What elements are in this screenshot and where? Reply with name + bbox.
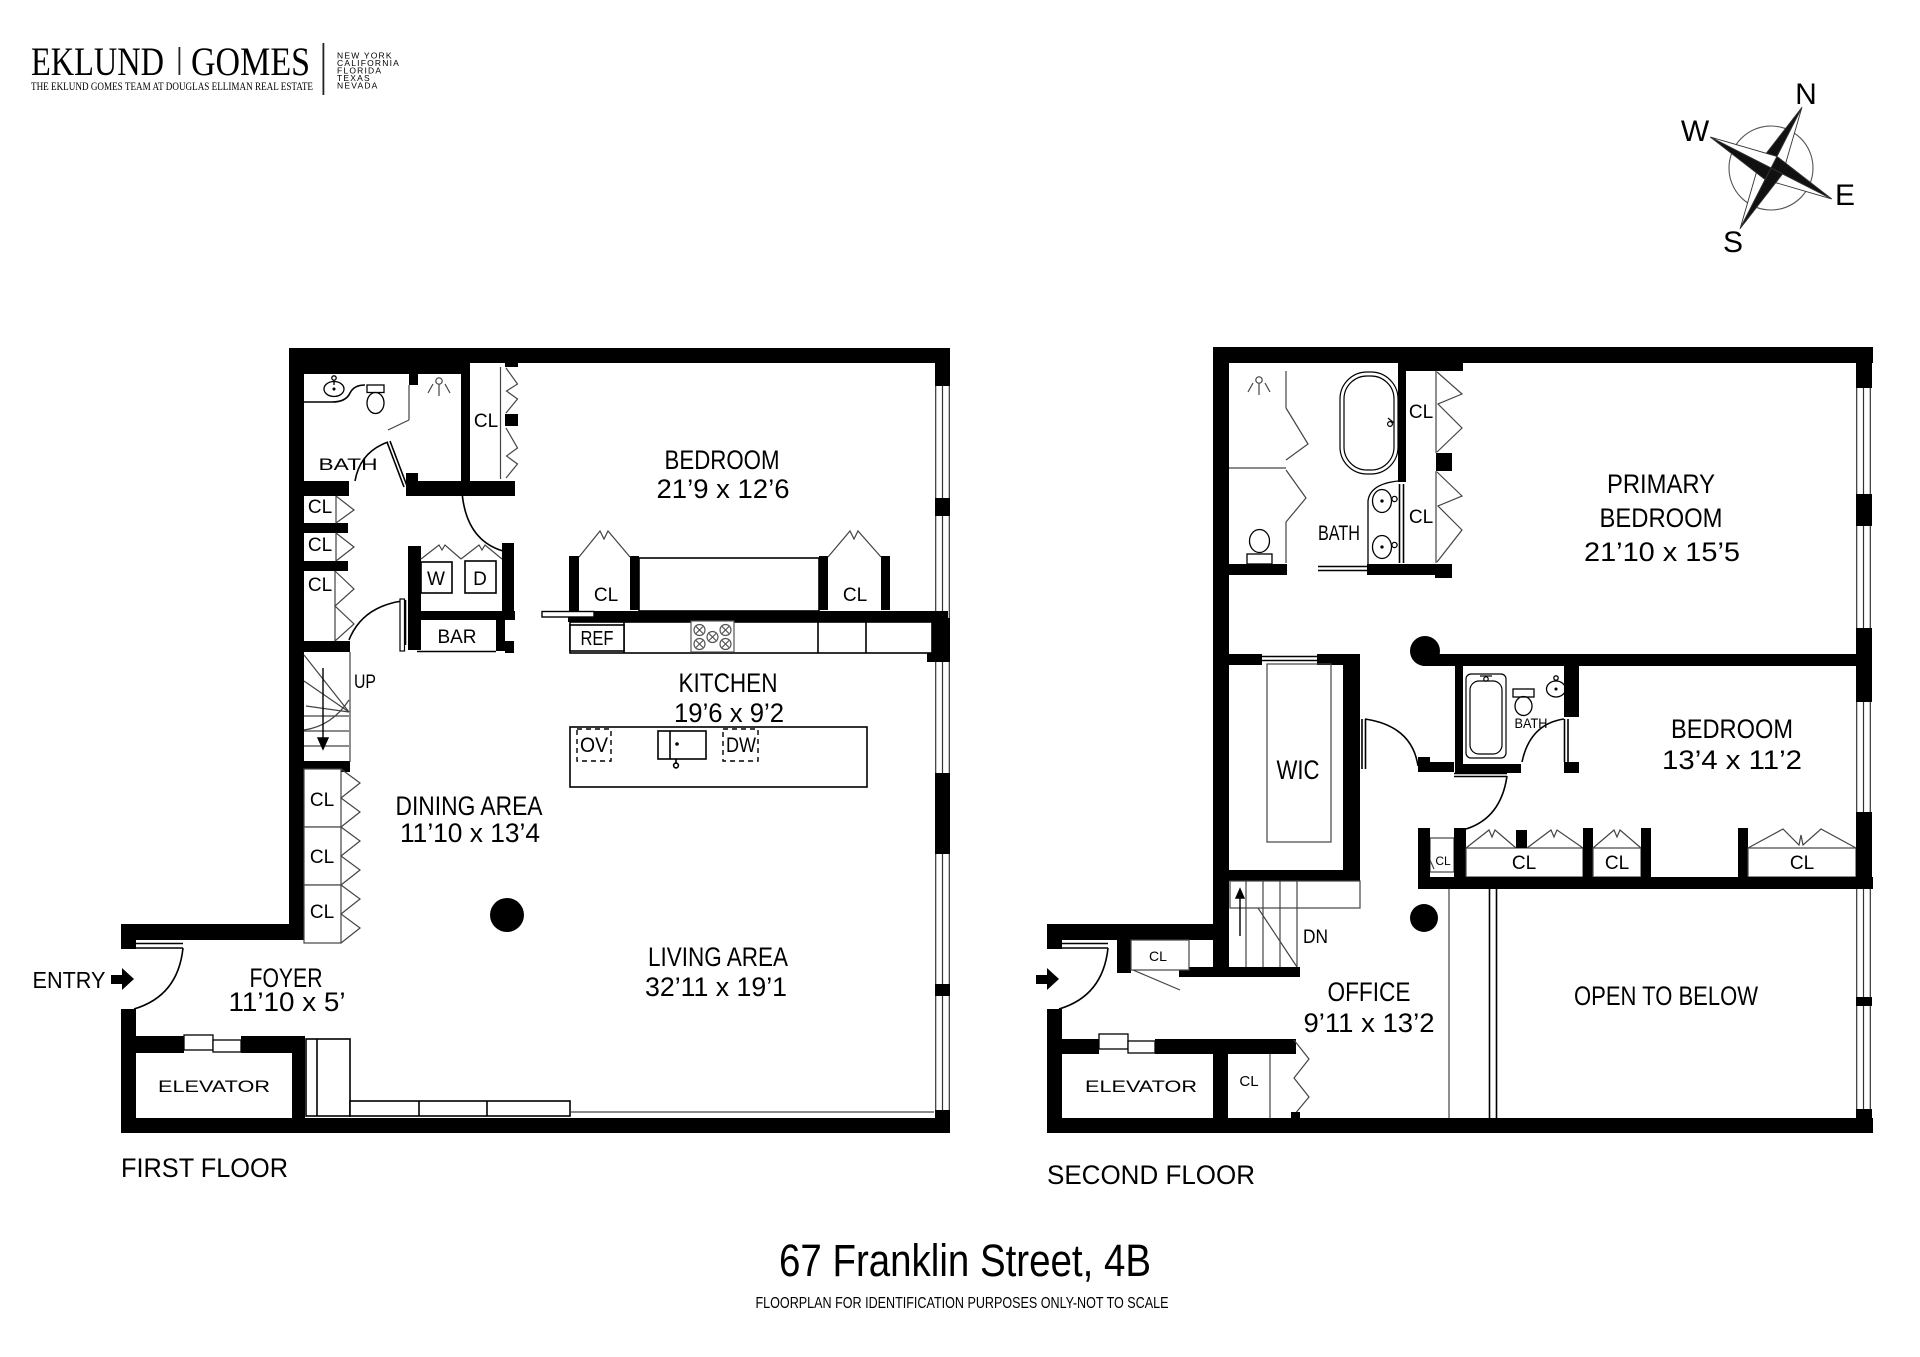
svg-text:GOMES: GOMES bbox=[191, 39, 310, 84]
svg-text:BATH: BATH bbox=[319, 455, 378, 474]
svg-text:CL: CL bbox=[1409, 507, 1433, 528]
svg-text:BEDROOM: BEDROOM bbox=[1600, 503, 1723, 533]
svg-text:CL: CL bbox=[594, 585, 618, 606]
svg-text:PRIMARY: PRIMARY bbox=[1607, 469, 1715, 499]
svg-text:9’11 x 13’2: 9’11 x 13’2 bbox=[1304, 1008, 1435, 1038]
svg-text:CL: CL bbox=[1790, 853, 1814, 874]
svg-text:S: S bbox=[1723, 226, 1743, 259]
svg-text:DINING AREA: DINING AREA bbox=[396, 791, 543, 821]
svg-text:THE EKLUND GOMES TEAM AT DOUGL: THE EKLUND GOMES TEAM AT DOUGLAS ELLIMAN… bbox=[31, 81, 313, 93]
svg-text:EKLUND: EKLUND bbox=[31, 39, 164, 84]
svg-text:CL: CL bbox=[1605, 853, 1629, 874]
svg-text:D: D bbox=[473, 569, 487, 590]
svg-text:11’10 x 13’4: 11’10 x 13’4 bbox=[400, 818, 540, 848]
svg-text:32’11 x 19’1: 32’11 x 19’1 bbox=[645, 972, 787, 1002]
svg-text:CL: CL bbox=[843, 585, 867, 606]
svg-text:CL: CL bbox=[1409, 402, 1433, 423]
svg-text:CL: CL bbox=[310, 847, 334, 868]
svg-text:BAR: BAR bbox=[437, 627, 476, 648]
svg-text:CL: CL bbox=[310, 902, 334, 923]
svg-text:DN: DN bbox=[1303, 927, 1328, 948]
svg-text:ELEVATOR: ELEVATOR bbox=[1085, 1077, 1197, 1096]
svg-text:CL: CL bbox=[1149, 948, 1167, 964]
svg-text:BATH: BATH bbox=[1318, 522, 1360, 545]
svg-text:19’6 x 9’2: 19’6 x 9’2 bbox=[674, 698, 784, 728]
svg-text:CL: CL bbox=[474, 411, 498, 432]
svg-text:ENTRY: ENTRY bbox=[33, 967, 106, 993]
svg-text:SECOND FLOOR: SECOND FLOOR bbox=[1047, 1160, 1255, 1190]
svg-text:W: W bbox=[427, 569, 445, 590]
svg-text:LIVING AREA: LIVING AREA bbox=[648, 942, 788, 972]
svg-text:REF: REF bbox=[581, 628, 614, 650]
svg-text:13’4 x 11’2: 13’4 x 11’2 bbox=[1662, 745, 1802, 775]
svg-text:FLOORPLAN FOR IDENTIFICATION P: FLOORPLAN FOR IDENTIFICATION PURPOSES ON… bbox=[756, 1295, 1169, 1312]
svg-text:CL: CL bbox=[308, 497, 332, 518]
svg-text:BEDROOM: BEDROOM bbox=[665, 445, 780, 475]
svg-text:CL: CL bbox=[1435, 854, 1451, 868]
svg-text:DW: DW bbox=[726, 734, 756, 757]
svg-text:BEDROOM: BEDROOM bbox=[1671, 714, 1793, 744]
svg-text:W: W bbox=[1681, 115, 1710, 148]
svg-text:NEVADA: NEVADA bbox=[337, 81, 379, 91]
svg-text:CL: CL bbox=[308, 535, 332, 556]
svg-text:67 Franklin Street, 4B: 67 Franklin Street, 4B bbox=[779, 1235, 1151, 1286]
svg-text:E: E bbox=[1835, 179, 1855, 212]
svg-text:11’10 x 5’: 11’10 x 5’ bbox=[229, 987, 346, 1017]
svg-text:CL: CL bbox=[308, 575, 332, 596]
svg-text:BATH: BATH bbox=[1515, 715, 1548, 731]
svg-text:FIRST FLOOR: FIRST FLOOR bbox=[121, 1153, 288, 1183]
svg-text:21’9 x 12’6: 21’9 x 12’6 bbox=[657, 474, 790, 504]
svg-text:OFFICE: OFFICE bbox=[1328, 977, 1411, 1007]
svg-text:UP: UP bbox=[354, 672, 376, 693]
svg-text:OV: OV bbox=[580, 734, 608, 757]
svg-text:ELEVATOR: ELEVATOR bbox=[158, 1077, 270, 1096]
svg-text:CL: CL bbox=[1512, 853, 1536, 874]
svg-text:21’10 x 15’5: 21’10 x 15’5 bbox=[1584, 537, 1740, 567]
svg-text:KITCHEN: KITCHEN bbox=[679, 668, 778, 698]
svg-text:N: N bbox=[1795, 78, 1817, 111]
svg-text:CL: CL bbox=[1239, 1073, 1258, 1090]
svg-text:CL: CL bbox=[310, 790, 334, 811]
svg-text:OPEN TO BELOW: OPEN TO BELOW bbox=[1574, 981, 1758, 1011]
svg-text:WIC: WIC bbox=[1277, 755, 1320, 785]
